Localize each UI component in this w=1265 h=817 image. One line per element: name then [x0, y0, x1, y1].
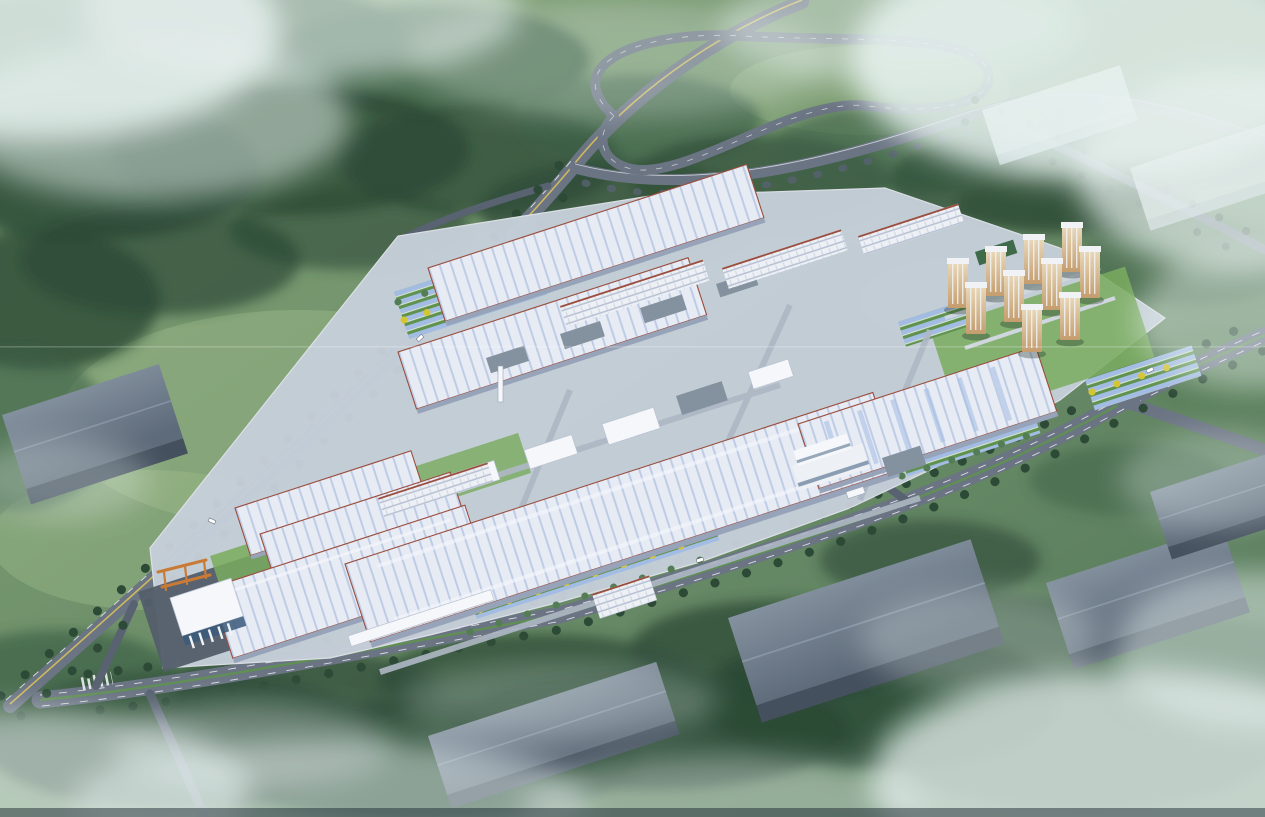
- chimney-stack: White chimney stack: [498, 366, 503, 402]
- aerial-rendering: Forest and meadow belt Forest and meadow…: [0, 0, 1265, 817]
- photo-bottom-edge: [0, 808, 1265, 817]
- rendering-canvas: Forest and meadow belt Forest and meadow…: [0, 0, 1265, 817]
- residential-tower: [1056, 292, 1084, 347]
- residential-tower: [962, 282, 990, 341]
- residential-tower: [1018, 304, 1046, 359]
- scan-artifact-line: Faint horizontal scan artifact line: [0, 346, 1265, 348]
